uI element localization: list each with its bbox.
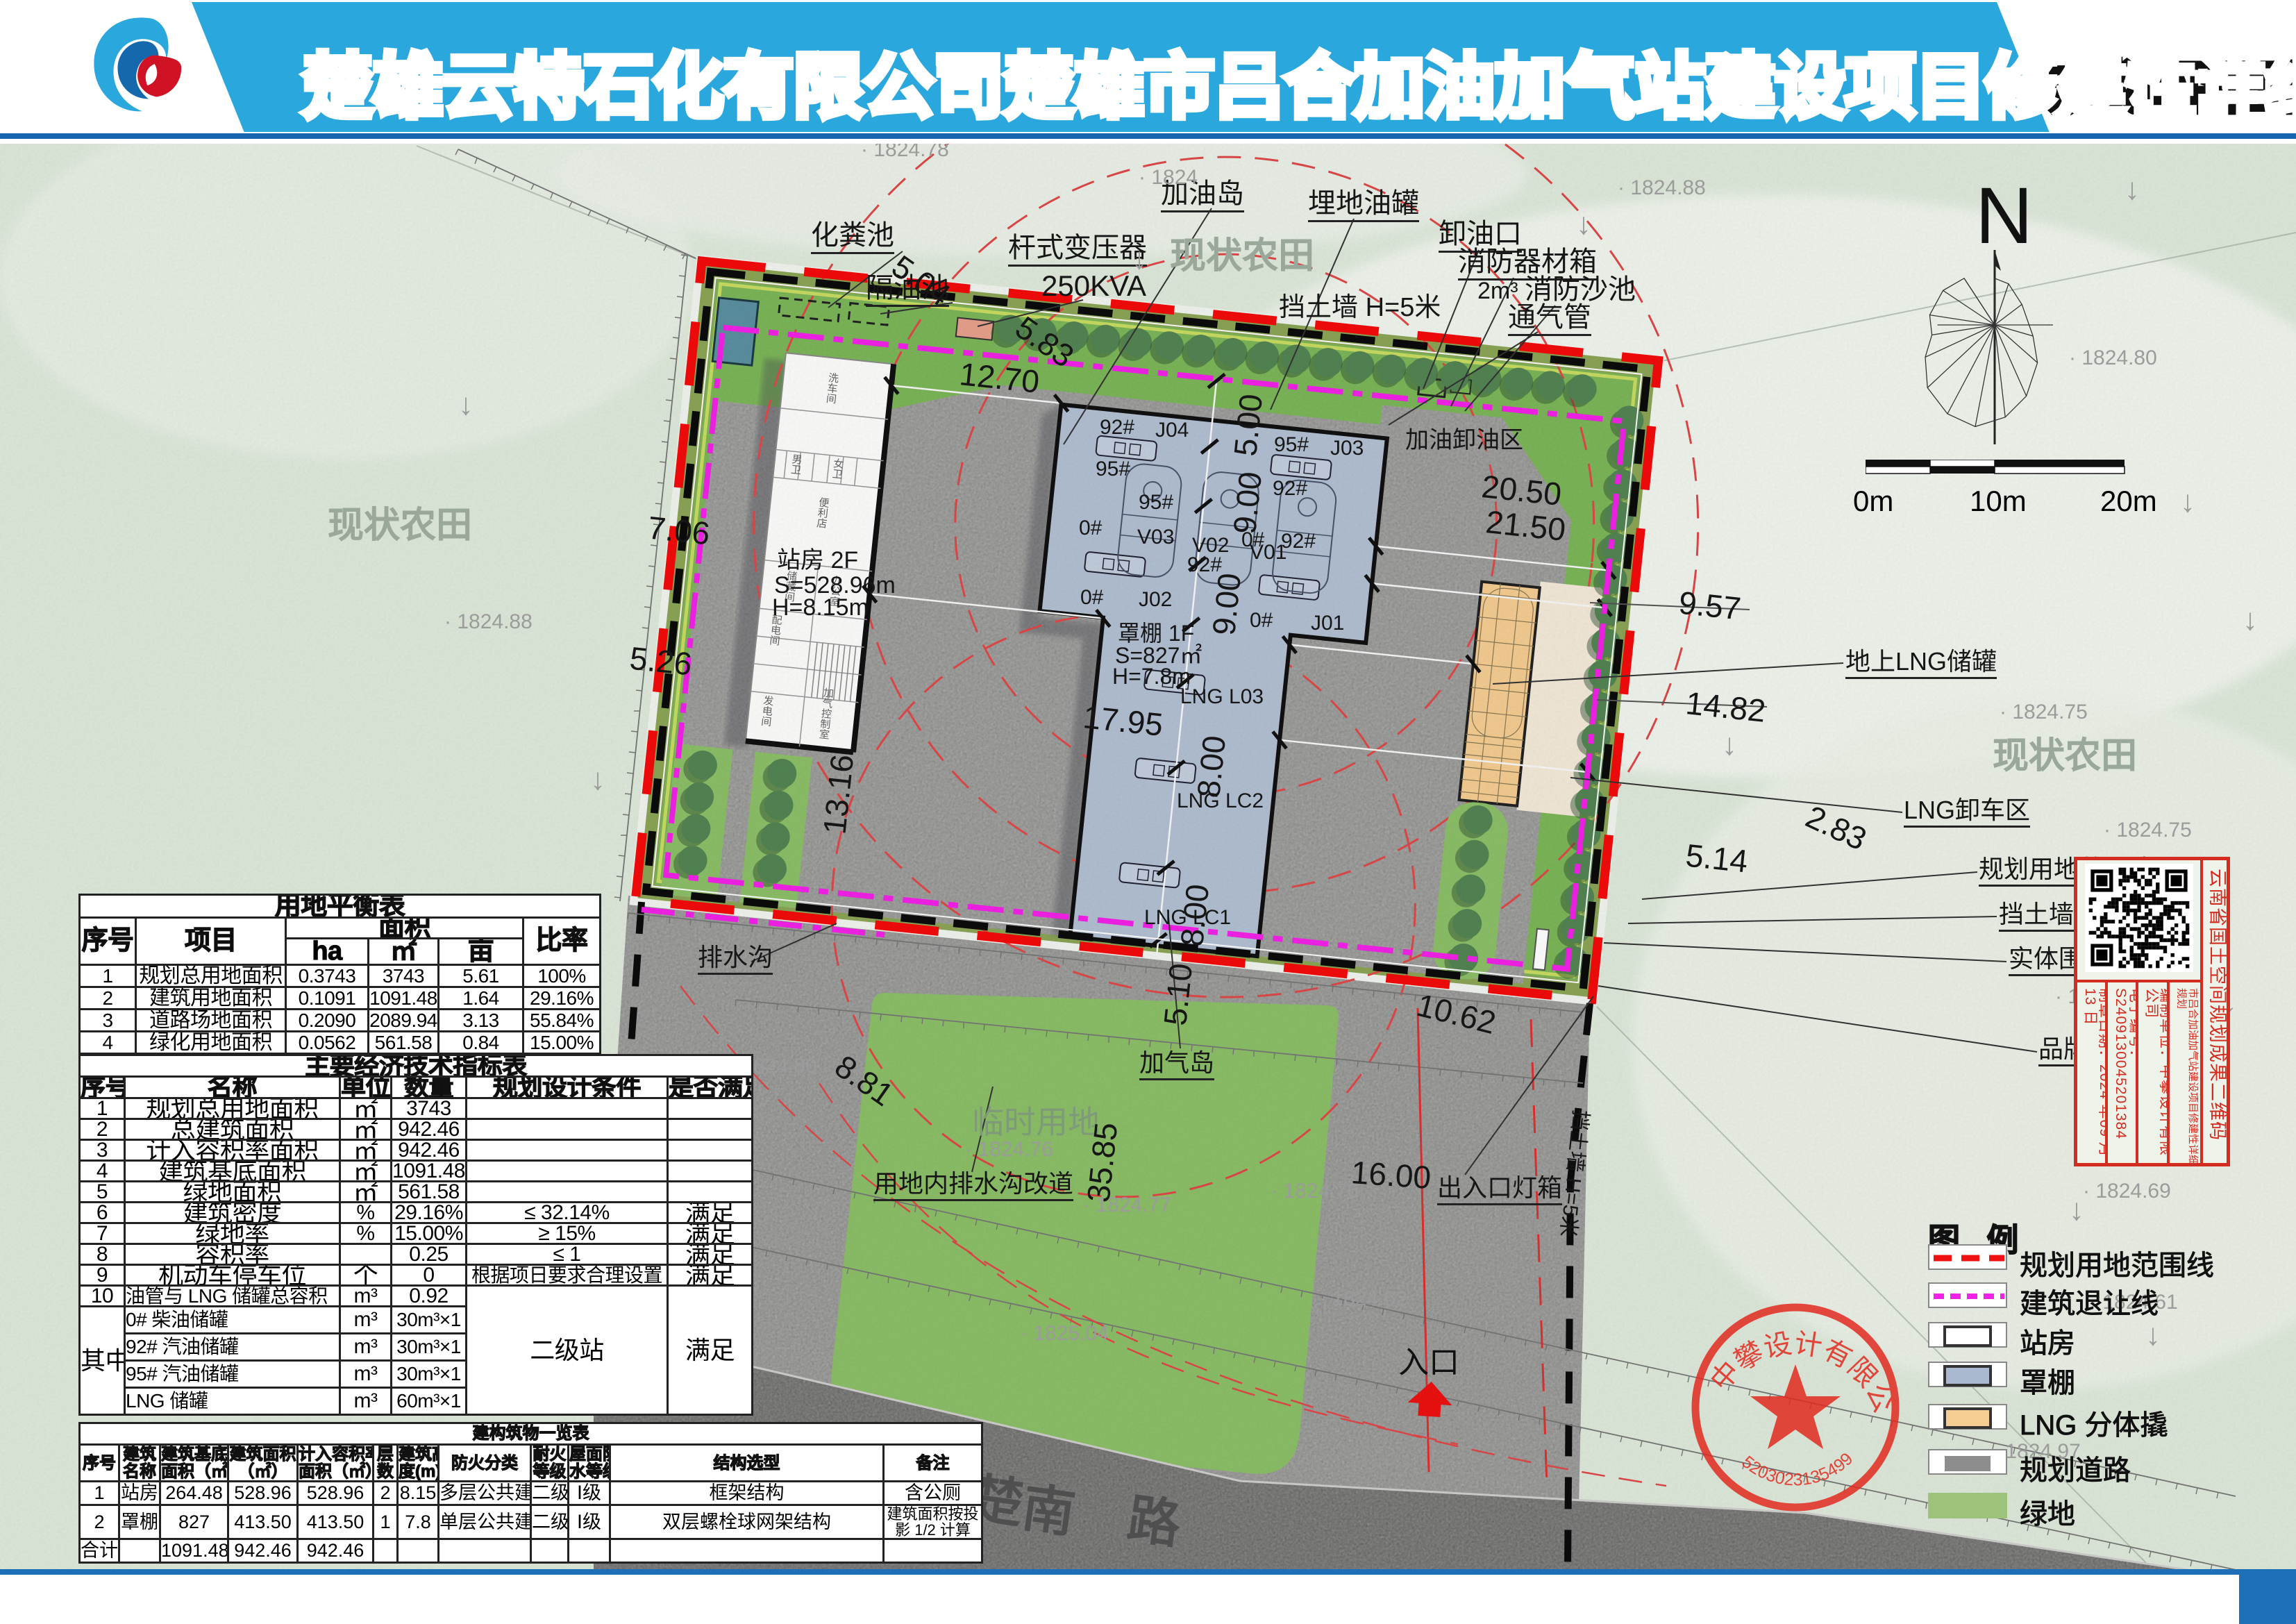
- svg-text:N: N: [1975, 171, 2033, 260]
- svg-text:5203023135499: 5203023135499: [1738, 1449, 1857, 1490]
